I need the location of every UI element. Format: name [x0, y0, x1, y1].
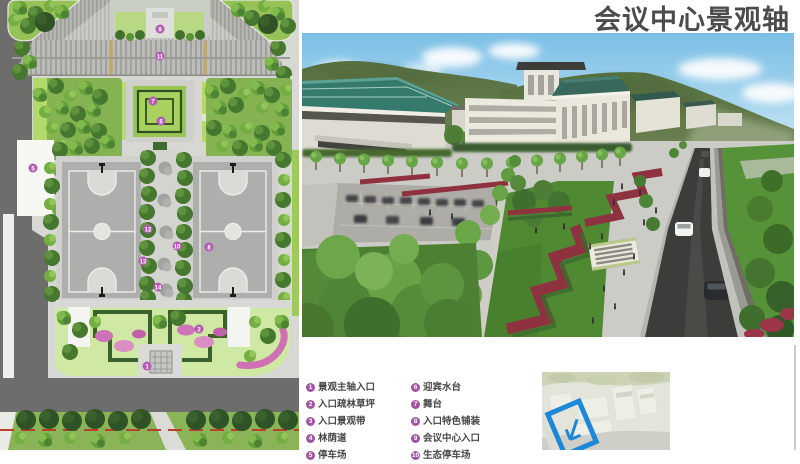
svg-text:11: 11	[157, 54, 164, 60]
svg-text:14: 14	[155, 285, 162, 291]
svg-text:12: 12	[145, 227, 152, 233]
svg-text:13: 13	[140, 259, 147, 265]
svg-text:10: 10	[174, 244, 181, 250]
